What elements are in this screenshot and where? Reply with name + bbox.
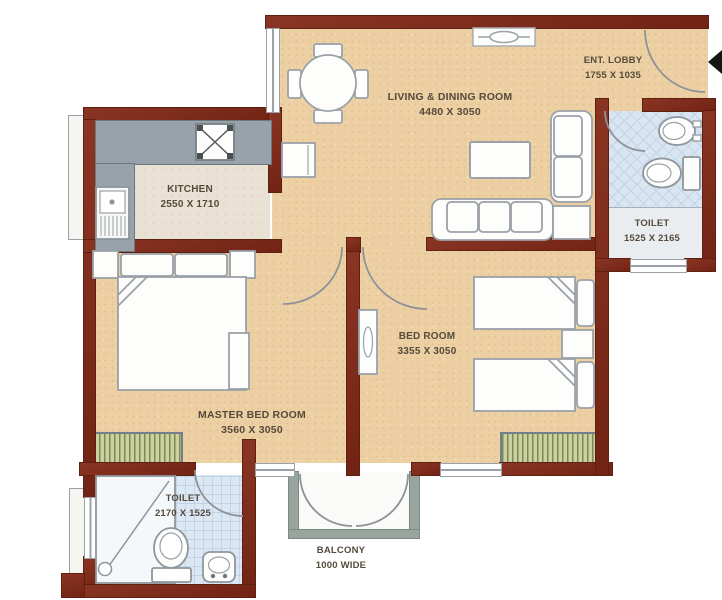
window-sill-master (92, 432, 183, 465)
wall-living-bottom (427, 238, 608, 250)
wall-toilet-right-bottom-a (596, 259, 630, 271)
floor-toilet-right (608, 111, 703, 207)
kitchen-counter-left (95, 163, 135, 252)
window-sill-bedroom (500, 432, 599, 465)
label-living-dining: LIVING & DINING ROOM 4480 X 3050 (388, 90, 513, 120)
wall-toilet-left-bottom (76, 585, 255, 597)
room-dims: 4480 X 3050 (388, 105, 513, 120)
label-balcony: BALCONY 1000 WIDE (316, 543, 366, 573)
window-bedroom-bottom (440, 463, 502, 477)
room-dims: 1525 X 2165 (624, 231, 680, 246)
wall-kitchen-top (84, 108, 281, 120)
wall-between-bedrooms (347, 252, 359, 475)
label-master-bedroom: MASTER BED ROOM 3560 X 3050 (198, 408, 306, 438)
room-dims: 2170 X 1525 (155, 506, 211, 521)
label-ent-lobby: ENT. LOBBY 1755 X 1035 (584, 53, 642, 83)
room-dims: 2550 X 1710 (161, 197, 220, 212)
room-name: TOILET (155, 491, 211, 506)
room-name: TOILET (624, 216, 680, 231)
entry-arrow-icon (708, 50, 722, 74)
label-toilet-left: TOILET 2170 X 1525 (155, 491, 211, 521)
wall-left-upper (84, 120, 95, 497)
wall-top (266, 16, 708, 28)
window-living-left (266, 28, 280, 113)
room-name: ENT. LOBBY (584, 53, 642, 68)
window-toilet-left (84, 497, 97, 559)
room-name: KITCHEN (161, 182, 220, 197)
floor-balcony (298, 472, 410, 530)
room-name: LIVING & DINING ROOM (388, 90, 513, 105)
floor-plan: LIVING & DINING ROOM 4480 X 3050 ENT. LO… (0, 0, 722, 600)
room-name: BED ROOM (398, 329, 457, 344)
balcony-wall-front (289, 530, 419, 538)
window-toilet-right (630, 259, 687, 273)
room-dims: 3560 X 3050 (198, 423, 306, 438)
balcony-wall-right (410, 472, 419, 538)
wall-toilet-right-top (643, 99, 715, 111)
room-dims: 1000 WIDE (316, 558, 366, 573)
room-dims: 3355 X 3050 (398, 344, 457, 359)
wall-hall-stub (347, 238, 360, 252)
kitchen-counter-top (95, 120, 272, 165)
wall-toilet-left-right (243, 440, 255, 597)
wall-right-inner (596, 99, 608, 475)
wall-toilet-right-bottom-b (685, 259, 715, 271)
wall-master-bottom (80, 463, 195, 475)
floor-living-dining (272, 24, 608, 252)
balcony-wall-left (289, 472, 298, 538)
wall-toilet-right-side (703, 111, 715, 271)
wall-corner-stub (62, 574, 84, 597)
label-bedroom: BED ROOM 3355 X 3050 (398, 329, 457, 359)
room-dims: 1755 X 1035 (584, 68, 642, 83)
window-master-bottom (255, 463, 295, 477)
label-kitchen: KITCHEN 2550 X 1710 (161, 182, 220, 212)
room-name: BALCONY (316, 543, 366, 558)
label-toilet-right: TOILET 1525 X 2165 (624, 216, 680, 246)
wall-bedroom-bottom-stub (412, 463, 440, 475)
room-name: MASTER BED ROOM (198, 408, 306, 423)
